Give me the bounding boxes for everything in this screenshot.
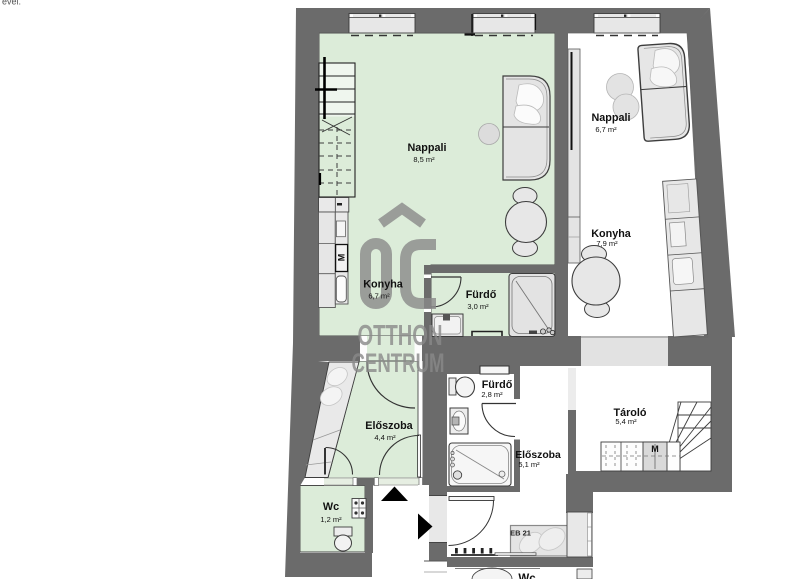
svg-text:Konyha: Konyha	[363, 279, 404, 291]
svg-text:1,2 m²: 1,2 m²	[320, 515, 342, 524]
svg-text:7,9 m²: 7,9 m²	[596, 239, 618, 248]
svg-text:2,8 m²: 2,8 m²	[481, 390, 503, 399]
svg-text:6,7 m²: 6,7 m²	[368, 292, 390, 301]
svg-text:5,4 m²: 5,4 m²	[615, 417, 637, 426]
svg-text:M: M	[651, 444, 659, 454]
svg-text:EB 21: EB 21	[510, 529, 531, 538]
svg-text:Fürdő: Fürdő	[466, 289, 497, 301]
svg-text:Wc: Wc	[518, 573, 536, 579]
svg-text:evel.: evel.	[2, 0, 21, 7]
svg-text:4,4 m²: 4,4 m²	[374, 433, 396, 442]
svg-text:Wc: Wc	[323, 501, 339, 513]
svg-text:Előszoba: Előszoba	[365, 420, 413, 432]
svg-text:5,1 m²: 5,1 m²	[518, 460, 540, 469]
svg-text:M: M	[337, 254, 347, 262]
svg-text:8,5 m²: 8,5 m²	[413, 155, 435, 164]
svg-text:CENTRUM: CENTRUM	[352, 348, 445, 378]
svg-text:3,0 m²: 3,0 m²	[467, 302, 489, 311]
svg-text:Nappali: Nappali	[408, 142, 447, 154]
svg-text:6,7 m²: 6,7 m²	[595, 125, 617, 134]
svg-text:Nappali: Nappali	[592, 112, 631, 124]
